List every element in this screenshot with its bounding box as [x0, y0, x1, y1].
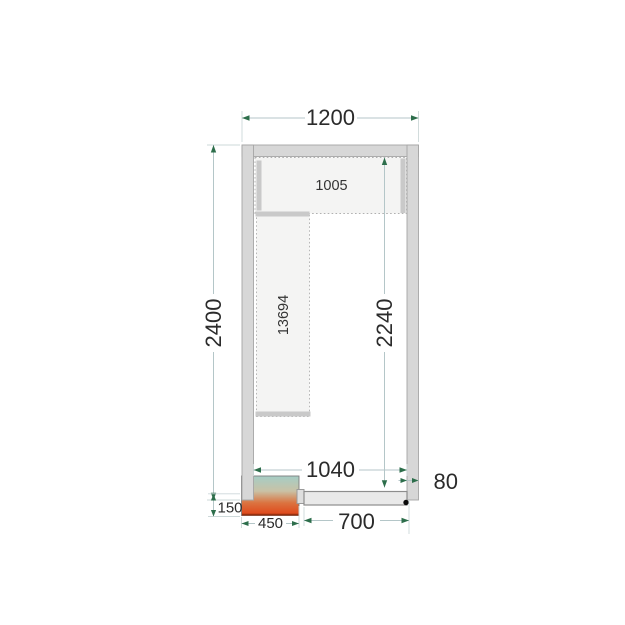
door-frame-step — [297, 490, 304, 504]
dim-total-width-value: 1200 — [306, 105, 355, 130]
shelf-support-left — [257, 161, 262, 211]
wall-left — [242, 145, 254, 500]
door-leaf — [304, 492, 407, 506]
dim-unit-protrusion-value: 150 — [218, 500, 243, 517]
door-hinge-dot — [403, 500, 408, 505]
arrowhead — [401, 478, 408, 483]
arrowhead — [242, 521, 249, 526]
arrowhead — [400, 467, 408, 472]
shelf-top-label: 1005 — [315, 178, 347, 194]
arrowhead — [304, 518, 312, 523]
dimension-total-height: 2400 — [201, 145, 240, 517]
door — [297, 490, 409, 506]
shelf-support-right — [401, 159, 406, 214]
arrowhead — [242, 115, 250, 120]
wall-right — [407, 145, 419, 500]
dim-inner-height-value: 2240 — [372, 299, 397, 348]
shelving: 1005 13694 — [255, 158, 407, 417]
shelf-support-bottom — [256, 412, 311, 417]
dim-wall-thickness-value: 80 — [434, 469, 458, 494]
floor-plan-svg: 1005 13694 1200 2400 2240 — [0, 0, 625, 625]
dim-total-height-value: 2400 — [201, 299, 226, 348]
arrowhead — [382, 480, 387, 487]
shelf-left-label: 13694 — [276, 295, 292, 335]
wall-top — [242, 145, 419, 157]
shelf-support-corner — [256, 212, 310, 217]
dimension-total-width: 1200 — [242, 105, 419, 142]
arrowhead — [411, 115, 419, 120]
arrowhead — [254, 467, 262, 472]
arrowhead — [402, 518, 410, 523]
arrowhead — [292, 521, 299, 526]
dim-door-opening-value: 700 — [338, 509, 375, 534]
dim-unit-width-value: 450 — [258, 515, 283, 532]
arrowhead — [211, 510, 216, 517]
cold-room-drawing: 1005 13694 1200 2400 2240 — [0, 0, 625, 625]
dim-inner-width-value: 1040 — [306, 457, 355, 482]
arrowhead — [211, 145, 216, 153]
